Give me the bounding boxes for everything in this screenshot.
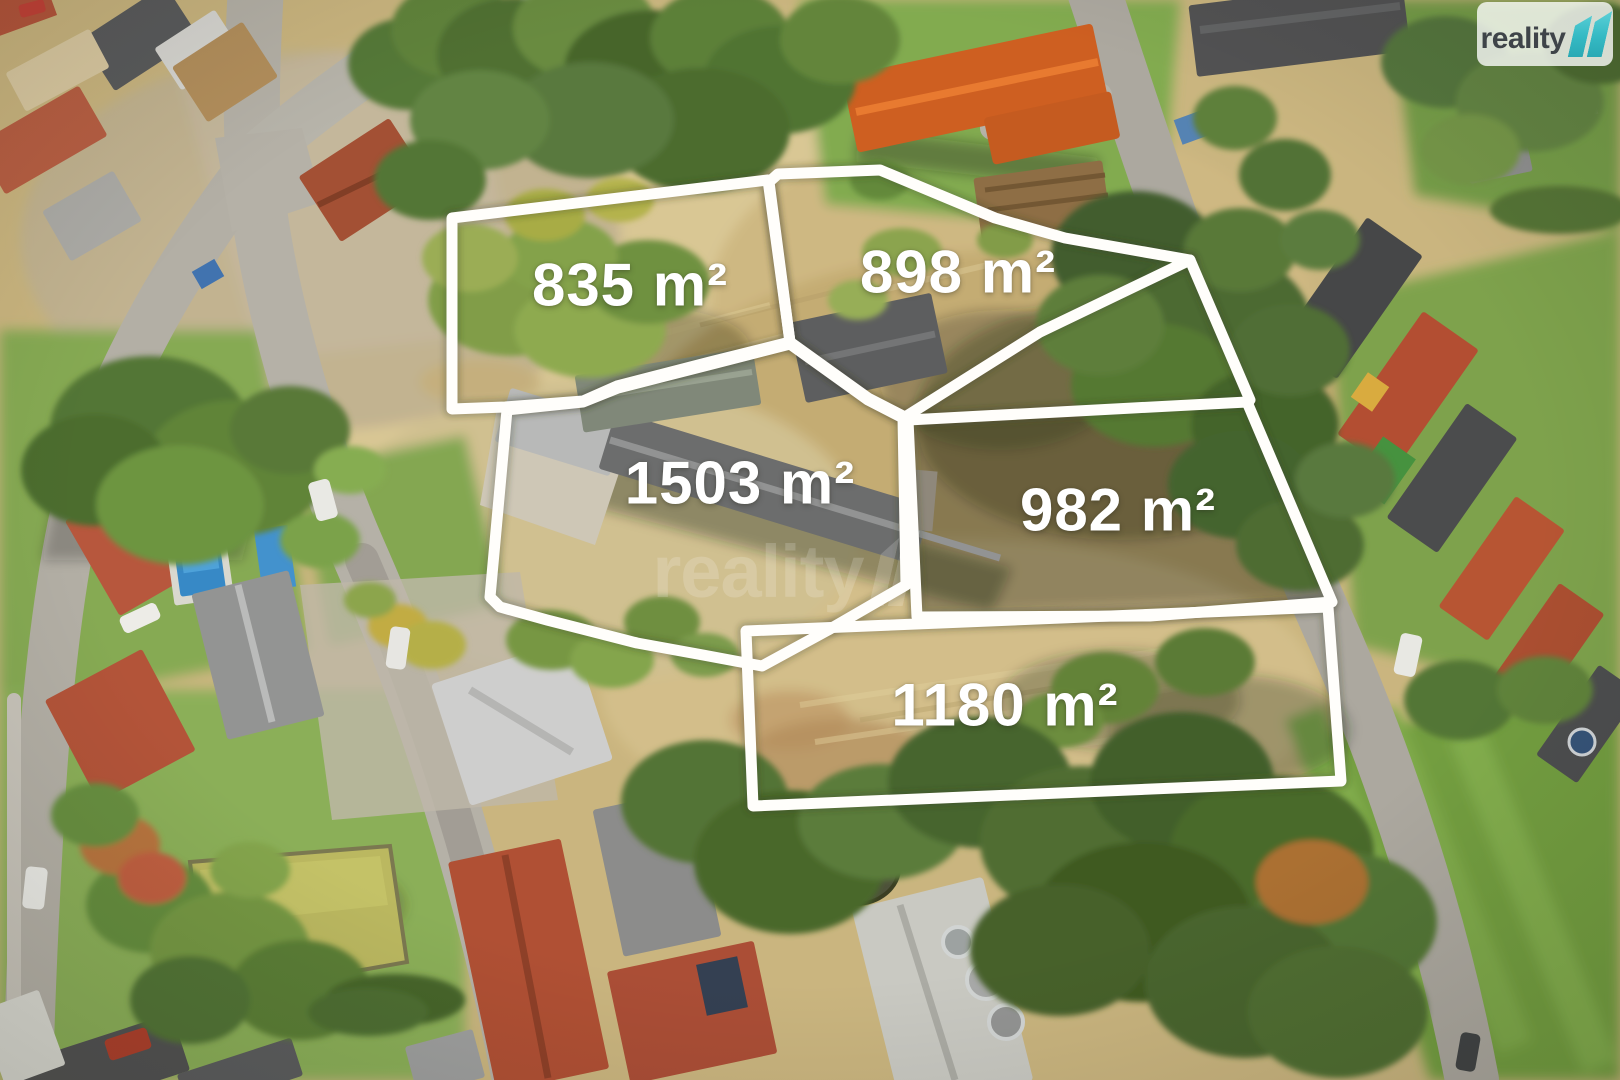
parcel-area-label-982: 982 m² xyxy=(1020,476,1216,545)
brand-logo-badge: reality xyxy=(1477,2,1613,66)
vignette xyxy=(0,0,1620,1080)
parcel-area-label-898: 898 m² xyxy=(860,238,1056,307)
parcel-area-label-835: 835 m² xyxy=(532,251,728,320)
reality-11-ribbon-icon xyxy=(1568,11,1615,57)
parcel-area-label-1503: 1503 m² xyxy=(625,449,855,518)
aerial-photo-illustration xyxy=(0,0,1620,1080)
aerial-listing-photo: reality 835 m² 898 m² 1503 m² 982 m² 118… xyxy=(0,0,1620,1080)
brand-logo-text: reality xyxy=(1481,14,1566,54)
parcel-area-label-1180: 1180 m² xyxy=(891,671,1118,740)
